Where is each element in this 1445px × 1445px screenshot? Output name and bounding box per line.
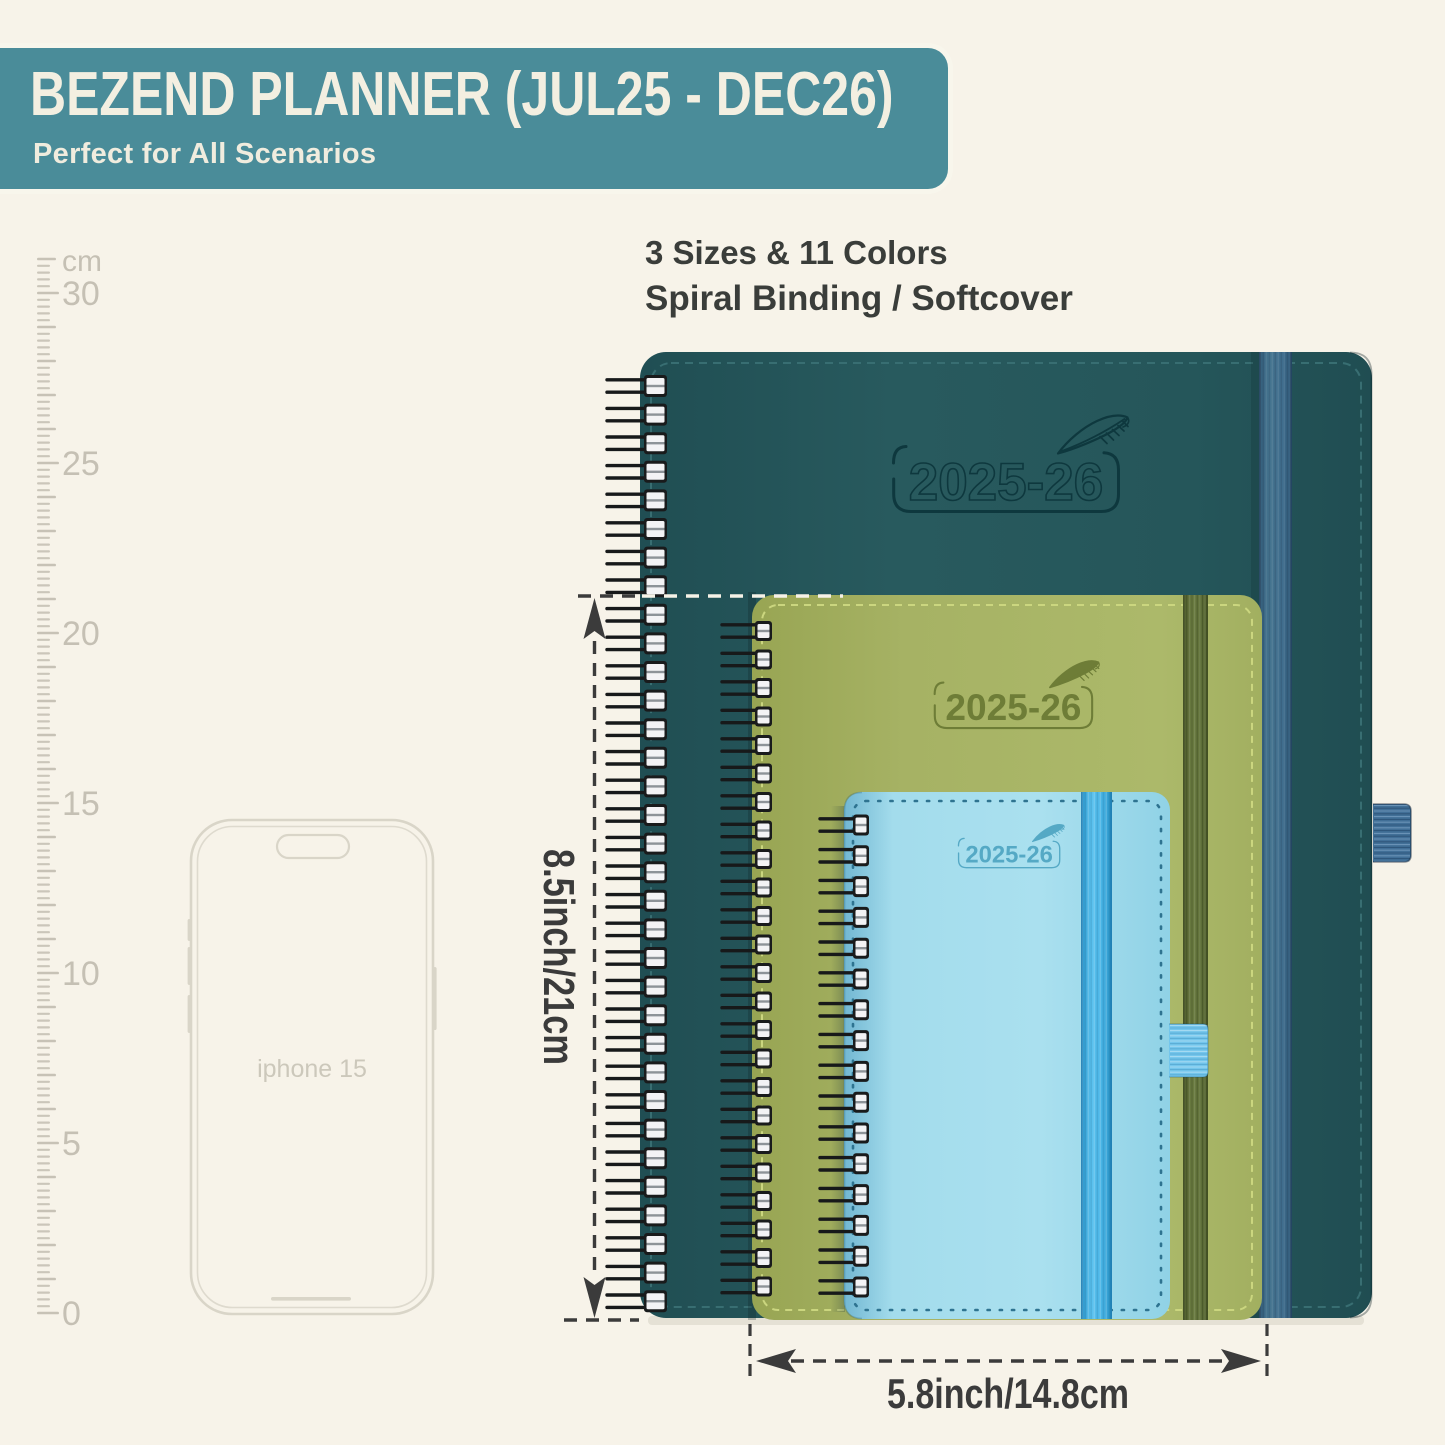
- svg-text:15: 15: [62, 785, 100, 823]
- svg-text:5.8inch/14.8cm: 5.8inch/14.8cm: [887, 1370, 1129, 1417]
- svg-text:cm: cm: [62, 245, 102, 278]
- svg-text:10: 10: [62, 955, 100, 993]
- svg-text:2025-26: 2025-26: [909, 453, 1104, 512]
- svg-text:5: 5: [62, 1125, 81, 1163]
- svg-text:20: 20: [62, 615, 100, 653]
- svg-text:30: 30: [62, 275, 100, 313]
- svg-text:iphone 15: iphone 15: [257, 1055, 367, 1083]
- svg-text:25: 25: [62, 445, 100, 483]
- svg-text:0: 0: [62, 1295, 81, 1333]
- svg-text:8.5inch/21cm: 8.5inch/21cm: [534, 849, 583, 1065]
- svg-text:2025-26: 2025-26: [965, 842, 1053, 869]
- svg-text:2025-26: 2025-26: [945, 686, 1081, 728]
